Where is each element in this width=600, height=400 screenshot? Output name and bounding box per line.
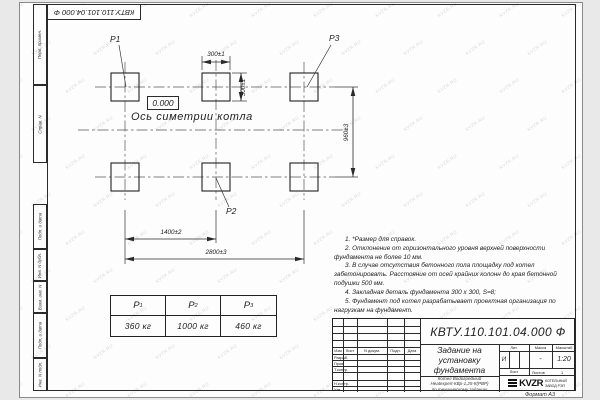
kvzr-logo-icon	[508, 379, 517, 388]
drawing-sheet-a3: KVZR.RUKVZR.RUKVZR.RUKVZR.RUKVZR.RUKVZR.…	[0, 0, 600, 400]
kvzr-logo-text: KVZR	[519, 378, 543, 389]
elevation-value: 0.000	[152, 98, 173, 108]
tb-lit-value: И	[499, 351, 509, 368]
dimension-total-width: 2800±3	[191, 249, 241, 256]
load-table-header-p3: P3	[221, 296, 276, 316]
logo-caption-line: ЗАВОД РЭП	[545, 384, 567, 388]
dimension-row-spacing: 960±3	[340, 114, 353, 150]
elevation-mark: 0.000	[147, 96, 179, 110]
technical-notes: 1. *Размер для справок. 2. Отклонение от…	[334, 236, 577, 315]
tb-col-data: Дата	[404, 347, 420, 354]
dimension-pad-height: 300±1	[236, 73, 251, 101]
leader-lines	[119, 45, 331, 207]
kvzr-logo: KVZR КОТЕЛЬНЫЙ ЗАВОД РЭП	[499, 375, 576, 392]
subtitle-line: по техническому заданию	[432, 387, 488, 392]
logo-caption-line: КОТЕЛЬНЫЙ	[545, 379, 567, 383]
tb-col-ndocum: N докум.	[357, 347, 387, 354]
dimension-text: 960±3	[343, 123, 350, 140]
load-table-value-p3: 460 кг	[221, 316, 276, 336]
header-sub: 1	[140, 303, 143, 309]
format-label: Формат А3	[495, 392, 585, 398]
tb-row-nkontr: Н.контр.	[334, 381, 358, 386]
load-table-value-p2: 1000 кг	[166, 316, 221, 336]
title-block-doc-number: КВТУ.110.101.04.000 Ф	[420, 319, 576, 344]
dimension-text: 300±1	[240, 78, 247, 95]
note-2: 2. Отклонение от горизонтального уровня …	[334, 245, 577, 263]
drawing-title: Задание на установку фундамента	[420, 344, 499, 376]
tb-row-tkontr: Т.контр.	[334, 367, 358, 372]
title-line: Задание на	[437, 345, 482, 355]
title-line: установку	[439, 355, 481, 365]
load-table: P1 P2 P3 360 кг 1000 кг 460 кг	[110, 295, 277, 337]
tb-sheets-value: 1	[561, 370, 563, 375]
title-block: Изм Лист N докум. Подп. Дата Разраб. Про…	[332, 318, 575, 391]
note-3: 3. В случае отсутствия бетонного пола пл…	[334, 262, 577, 288]
drawing-subtitle: Котел Водогрейный Heatexpert-КВр-1,25-К(…	[420, 376, 499, 392]
tb-mass-label: Масса	[529, 344, 552, 351]
tb-col-list: Лист	[343, 347, 357, 354]
note-5: 5. Фундамент под котел разрабатывает про…	[334, 298, 577, 316]
header-sub: 2	[195, 303, 198, 309]
tb-row-utv: Утв.	[334, 387, 358, 392]
tb-lit-label: Лит.	[499, 344, 529, 351]
dimension-col-spacing: 1400±2	[146, 229, 196, 236]
title-line: фундамента	[434, 365, 485, 375]
centerlines	[78, 60, 350, 200]
tb-scale-value: 1:20	[552, 351, 576, 368]
note-1: 1. *Размер для справок.	[334, 236, 577, 245]
tb-scale-label: Масштаб	[552, 344, 576, 351]
foundation-pads	[111, 73, 318, 191]
boiler-symmetry-axis-label: Ось симетрии котла	[131, 111, 253, 123]
load-table-header-p1: P1	[111, 296, 166, 316]
tb-row-razrab: Разраб.	[334, 355, 358, 360]
load-point-p1-label: P1	[110, 34, 120, 44]
tb-col-podp: Подп.	[387, 347, 404, 354]
dimension-pad-width: 300±1	[196, 51, 236, 58]
note-4: 4. Закладная деталь фундамента 300 х 300…	[334, 289, 577, 298]
kvzr-logo-caption: КОТЕЛЬНЫЙ ЗАВОД РЭП	[545, 379, 567, 388]
load-point-p2-label: P2	[226, 206, 236, 216]
tb-mass-value: -	[529, 351, 552, 368]
tb-sheets-label: Листов	[532, 370, 545, 375]
header-sub: 3	[250, 303, 253, 309]
load-point-p3-label: P3	[329, 33, 339, 43]
tb-row-prov: Пров.	[334, 361, 358, 366]
load-table-value-p1: 360 кг	[111, 316, 166, 336]
tb-sheet-label: Лист	[499, 368, 529, 375]
tb-col-izm: Изм	[333, 347, 343, 354]
load-table-header-p2: P2	[166, 296, 221, 316]
